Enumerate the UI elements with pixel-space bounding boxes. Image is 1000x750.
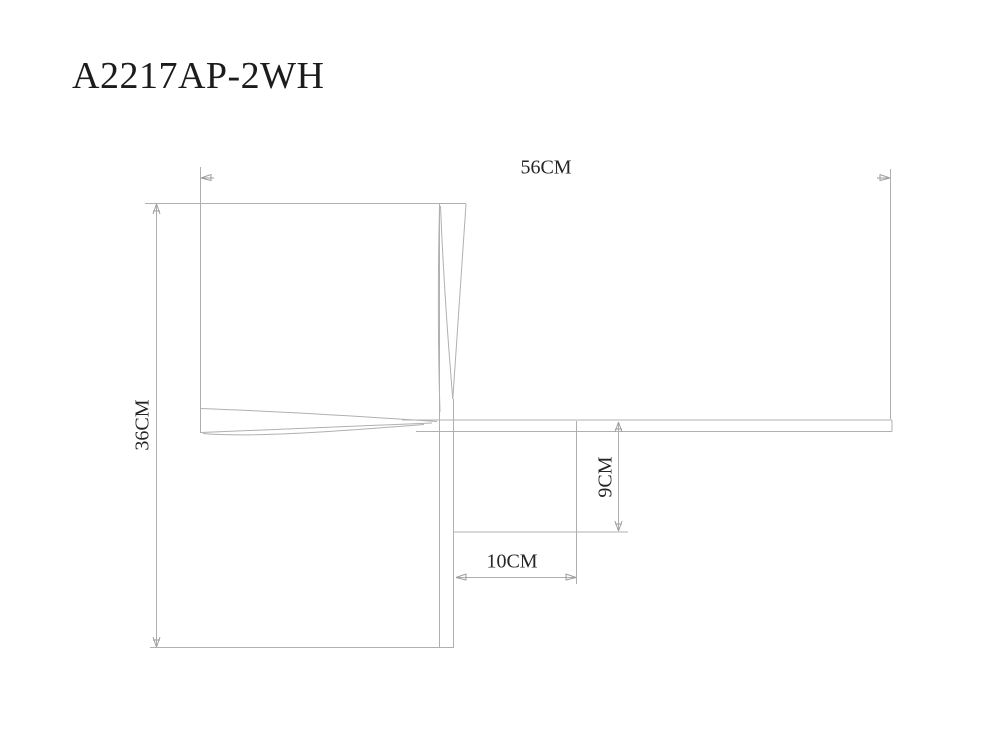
horizontal-blade-outer-curve [203,425,424,435]
dimension-label-9cm: 9CM [595,456,618,497]
vertical-blade [438,204,466,412]
horizontal-blade-bottom-edge [201,423,432,433]
lamp-outline [145,204,892,648]
dimension-label-56cm: 56CM [520,157,571,180]
arrow-left-icon [201,174,214,181]
horizontal-blade [201,408,438,435]
horizontal-blade-top-edge [201,409,437,422]
dimension-56cm [201,167,891,433]
vertical-blade-right-edge [453,204,466,399]
dimension-label-10cm: 10CM [486,551,537,574]
dimension-drawing-page: A2217AP-2WH [0,0,1000,750]
dimension-label-36cm: 36CM [132,399,155,450]
arrow-right-icon [877,174,890,181]
horizontal-bar [402,420,892,432]
lamp-dimension-drawing [0,0,1000,750]
vertical-blade-inner-curve [441,206,453,399]
